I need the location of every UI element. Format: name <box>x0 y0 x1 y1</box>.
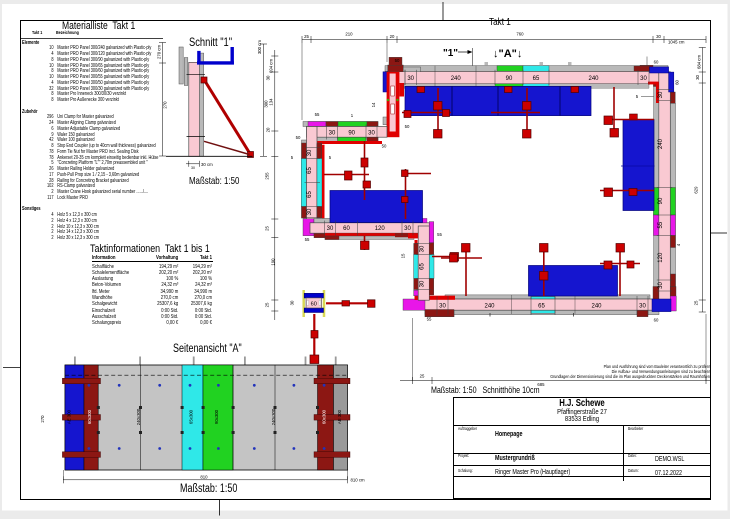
svg-text:25: 25 <box>694 300 699 305</box>
svg-text:684 cm: 684 cm <box>697 55 702 70</box>
svg-text:30: 30 <box>407 76 414 82</box>
svg-text:30: 30 <box>307 149 313 156</box>
svg-text:760: 760 <box>516 32 524 37</box>
svg-text:300 cm: 300 cm <box>257 40 262 55</box>
svg-text:30: 30 <box>420 245 426 252</box>
svg-text:694 cm: 694 cm <box>269 59 274 74</box>
svg-text:629: 629 <box>694 186 699 194</box>
svg-text:50: 50 <box>382 144 387 149</box>
svg-text:55: 55 <box>315 112 320 117</box>
svg-text:30: 30 <box>639 304 646 310</box>
svg-text:55: 55 <box>658 221 664 228</box>
svg-text:240: 240 <box>591 304 602 310</box>
svg-text:190: 190 <box>271 258 276 266</box>
svg-text:50: 50 <box>296 135 301 140</box>
svg-text:300: 300 <box>263 100 268 108</box>
svg-text:134: 134 <box>269 98 274 106</box>
svg-text:30: 30 <box>329 131 336 137</box>
svg-text:90x300: 90x300 <box>214 409 219 424</box>
svg-text:25: 25 <box>265 226 270 231</box>
svg-text:↓"A"↓: ↓"A"↓ <box>493 48 522 60</box>
svg-text:120: 120 <box>375 226 386 232</box>
svg-text:90: 90 <box>658 197 664 204</box>
svg-text:65: 65 <box>307 167 313 174</box>
svg-text:810 cm: 810 cm <box>351 478 366 483</box>
svg-text:60: 60 <box>654 60 659 65</box>
svg-text:60: 60 <box>654 318 659 323</box>
svg-text:30: 30 <box>307 208 313 215</box>
svg-text:30: 30 <box>658 91 664 98</box>
svg-text:30: 30 <box>404 226 411 232</box>
svg-text:30: 30 <box>327 226 334 232</box>
svg-text:55: 55 <box>437 232 442 237</box>
svg-text:30: 30 <box>368 131 375 137</box>
svg-text:55: 55 <box>427 317 432 322</box>
svg-text:15: 15 <box>401 253 406 258</box>
svg-text:AE 300: AE 300 <box>337 409 342 424</box>
svg-text:240x300: 240x300 <box>271 408 276 425</box>
svg-text:55: 55 <box>305 237 310 242</box>
svg-text:30: 30 <box>439 304 446 310</box>
svg-text:30: 30 <box>658 282 664 289</box>
svg-text:30: 30 <box>290 300 295 305</box>
svg-text:240: 240 <box>588 76 599 82</box>
svg-text:65x300: 65x300 <box>189 409 194 424</box>
svg-text:30: 30 <box>265 75 270 80</box>
svg-text:50: 50 <box>395 58 400 63</box>
svg-text:240: 240 <box>658 138 664 149</box>
svg-text:240: 240 <box>451 76 462 82</box>
svg-text:60x300: 60x300 <box>87 409 92 424</box>
svg-text:25: 25 <box>265 302 270 307</box>
svg-text:210: 210 <box>345 32 353 37</box>
svg-text:30: 30 <box>191 166 195 170</box>
svg-text:60: 60 <box>311 301 317 307</box>
svg-text:120: 120 <box>658 252 664 263</box>
svg-text:65: 65 <box>420 263 426 270</box>
svg-text:65: 65 <box>533 76 540 82</box>
svg-text:60x300: 60x300 <box>322 409 327 424</box>
svg-text:240x300: 240x300 <box>136 408 141 425</box>
svg-text:1045 cm: 1045 cm <box>668 40 685 45</box>
svg-text:810: 810 <box>200 474 208 479</box>
svg-text:60: 60 <box>675 80 680 85</box>
svg-text:25: 25 <box>420 374 425 379</box>
svg-text:30: 30 <box>695 75 700 80</box>
svg-text:65: 65 <box>538 304 545 310</box>
svg-text:240: 240 <box>484 304 495 310</box>
svg-text:270: 270 <box>40 415 45 423</box>
svg-text:30: 30 <box>640 76 647 82</box>
svg-text:50: 50 <box>405 124 410 129</box>
svg-text:"1": "1" <box>443 48 458 59</box>
svg-text:90: 90 <box>348 131 355 137</box>
svg-text:90: 90 <box>506 76 513 82</box>
svg-text:20: 20 <box>390 34 395 39</box>
svg-text:20: 20 <box>265 127 270 132</box>
svg-text:65: 65 <box>307 191 313 198</box>
svg-text:255: 255 <box>265 172 270 180</box>
svg-text:30: 30 <box>656 34 661 39</box>
svg-text:25: 25 <box>304 34 309 39</box>
svg-text:14: 14 <box>371 102 376 107</box>
svg-text:30 cm: 30 cm <box>201 162 213 167</box>
svg-text:60: 60 <box>343 226 350 232</box>
svg-text:30: 30 <box>420 280 426 287</box>
svg-text:AE 300: AE 300 <box>67 409 72 424</box>
